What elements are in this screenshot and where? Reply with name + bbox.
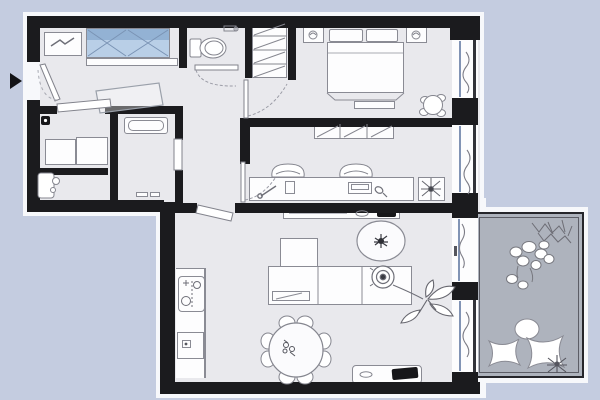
- floor-plan: [0, 0, 600, 400]
- wall-bedroom-study: [240, 118, 452, 127]
- floor-vent-b: [150, 192, 160, 197]
- blue-wardrobe: [86, 28, 170, 58]
- wall-bathA-partition: [33, 168, 108, 175]
- double-bed: [327, 42, 404, 93]
- entrance-arrow-icon: [10, 73, 22, 89]
- hall-closet: [252, 22, 287, 78]
- wall-bath-top-a: [40, 106, 57, 114]
- living-window-glass: [459, 301, 461, 371]
- pillow-left: [329, 29, 363, 42]
- shoe-cabinet: [44, 32, 82, 56]
- pier-top-right: [450, 16, 480, 40]
- vanity-cabinet-right: [76, 137, 108, 165]
- balcony-door-glass: [458, 219, 460, 281]
- wall-wc-closet: [245, 16, 252, 78]
- vanity-cabinet-left: [45, 139, 76, 165]
- study-window-glass: [459, 126, 461, 192]
- wall-wc-left: [179, 28, 187, 68]
- wall-box: [41, 116, 50, 125]
- wall-bottom-living: [160, 382, 480, 394]
- nightstand-right: [406, 27, 427, 43]
- wall-bottom-upperleft: [27, 200, 164, 212]
- wall-bathC-right-a: [175, 106, 183, 140]
- pier-right-1: [452, 98, 478, 125]
- tv: [392, 367, 419, 380]
- desk: [249, 177, 414, 201]
- wall-left-upper-b: [27, 100, 40, 212]
- living-window-frame: [473, 300, 476, 372]
- pier-right-2: [452, 193, 478, 218]
- wall-top: [27, 16, 480, 28]
- stove-icon: [182, 340, 191, 348]
- bed-foot-bench: [354, 101, 395, 109]
- wall-bedroom-left: [288, 16, 296, 80]
- wall-left-living: [160, 202, 175, 394]
- sofa-armrest: [272, 291, 310, 301]
- desk-organizer: [285, 181, 295, 194]
- study-window-frame: [473, 125, 476, 193]
- balcony-railing: [479, 217, 579, 373]
- bedroom-window-glass: [459, 41, 461, 97]
- sink-unit: [178, 276, 205, 312]
- wall-bath-divider: [110, 112, 118, 202]
- pier-right-3: [452, 282, 478, 300]
- wall-study-left: [240, 120, 250, 164]
- study-plant-pot: [418, 177, 445, 201]
- laptop-screen: [351, 184, 369, 190]
- nightstand-left: [303, 27, 324, 43]
- pier-right-4: [452, 372, 478, 394]
- balcony-door-handle[interactable]: [454, 246, 457, 256]
- pillow-right: [366, 29, 398, 42]
- corner-armchair: [280, 238, 318, 268]
- bathtub-inner: [128, 120, 164, 131]
- entrance-gap: [24, 62, 40, 100]
- wall-corridor-south-a: [175, 203, 197, 213]
- floor-vent-a: [136, 192, 148, 197]
- wall-corridor-south-b: [235, 203, 452, 213]
- bedroom-window-frame: [473, 40, 476, 98]
- hall-shelf-bench: [86, 58, 178, 66]
- wall-bathC-right-b: [175, 170, 183, 204]
- wall-left-upper-a: [27, 16, 40, 62]
- blue-wardrobe-top-band: [87, 29, 169, 40]
